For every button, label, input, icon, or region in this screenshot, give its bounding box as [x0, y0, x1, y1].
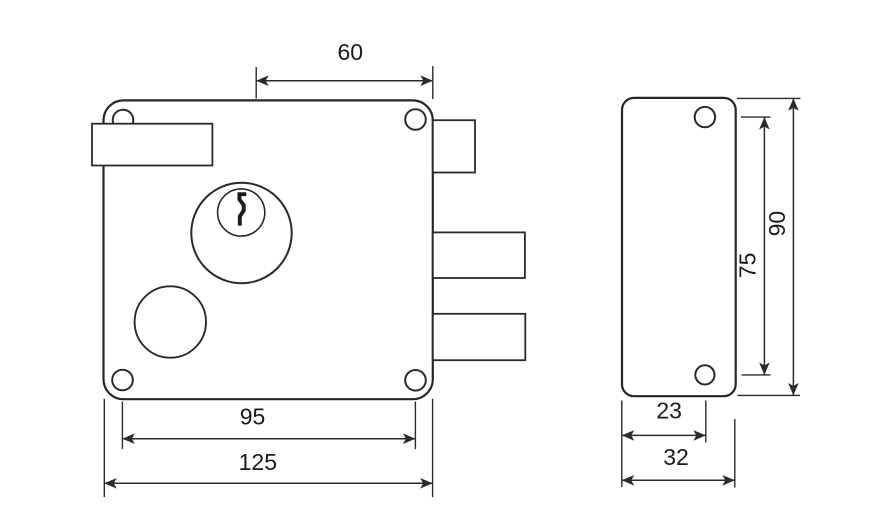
svg-text:23: 23 — [656, 398, 682, 424]
svg-text:125: 125 — [239, 449, 277, 475]
svg-text:32: 32 — [663, 444, 689, 470]
svg-text:90: 90 — [764, 211, 790, 237]
svg-text:75: 75 — [735, 253, 761, 279]
svg-text:60: 60 — [338, 39, 364, 65]
svg-text:95: 95 — [240, 404, 266, 430]
